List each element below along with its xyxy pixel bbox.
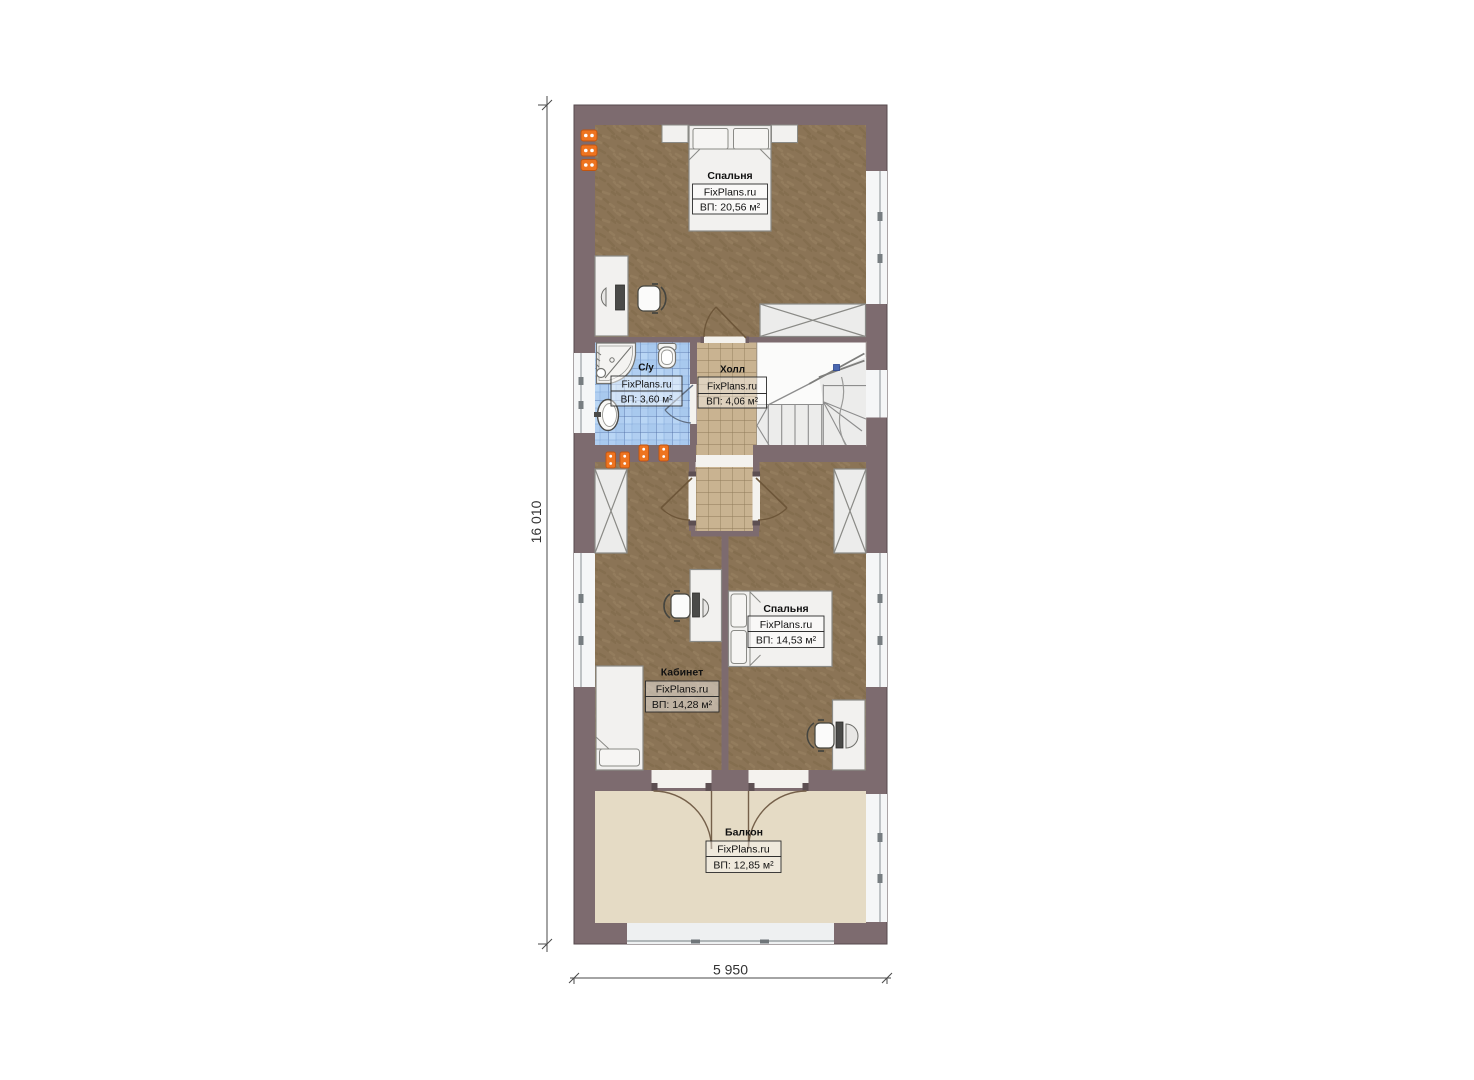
- svg-text:ВП: 12,85 м²: ВП: 12,85 м²: [713, 860, 774, 872]
- svg-text:ВП: 4,06 м²: ВП: 4,06 м²: [706, 397, 759, 408]
- svg-text:ВП: 3,60 м²: ВП: 3,60 м²: [621, 395, 674, 406]
- svg-text:ВП: 14,28 м²: ВП: 14,28 м²: [652, 699, 713, 711]
- svg-text:С/у: С/у: [638, 363, 654, 374]
- svg-text:Спальня: Спальня: [707, 170, 752, 182]
- svg-text:Холл: Холл: [720, 365, 745, 376]
- svg-text:5 950: 5 950: [713, 962, 748, 978]
- svg-text:FixPlans.ru: FixPlans.ru: [760, 619, 813, 631]
- svg-text:FixPlans.ru: FixPlans.ru: [717, 844, 770, 856]
- svg-text:ВП: 14,53 м²: ВП: 14,53 м²: [756, 635, 817, 647]
- svg-text:FixPlans.ru: FixPlans.ru: [656, 684, 709, 696]
- svg-text:Балкон: Балкон: [725, 827, 763, 839]
- svg-text:FixPlans.ru: FixPlans.ru: [707, 382, 757, 393]
- svg-text:Кабинет: Кабинет: [661, 667, 704, 679]
- svg-text:FixPlans.ru: FixPlans.ru: [621, 380, 671, 391]
- svg-text:16 010: 16 010: [528, 500, 544, 543]
- svg-text:Спальня: Спальня: [763, 603, 808, 615]
- svg-text:ВП: 20,56 м²: ВП: 20,56 м²: [700, 202, 761, 214]
- svg-text:FixPlans.ru: FixPlans.ru: [704, 187, 757, 199]
